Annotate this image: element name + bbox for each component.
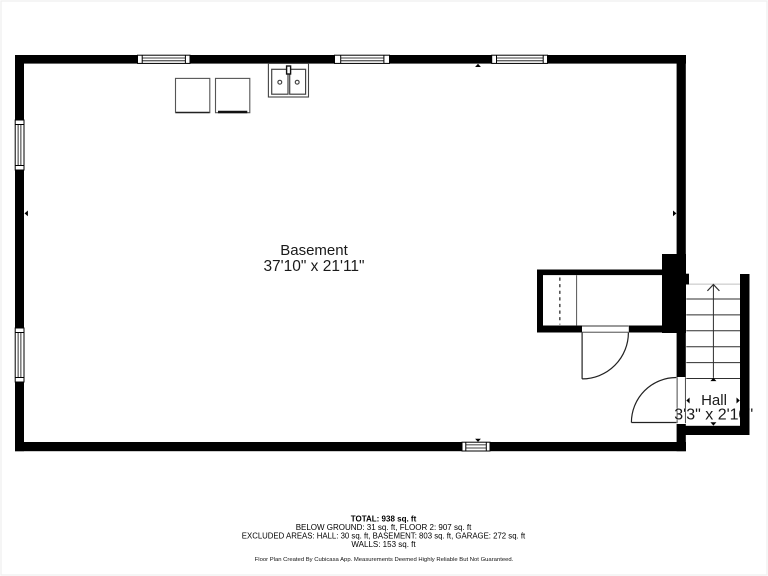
svg-text:37'10" x 21'11": 37'10" x 21'11" <box>263 258 364 275</box>
svg-text:Floor Plan Created By Cubicasa: Floor Plan Created By Cubicasa App. Meas… <box>255 557 514 563</box>
svg-text:Basement: Basement <box>280 242 348 259</box>
svg-text:WALLS: 153 sq. ft: WALLS: 153 sq. ft <box>351 540 416 549</box>
